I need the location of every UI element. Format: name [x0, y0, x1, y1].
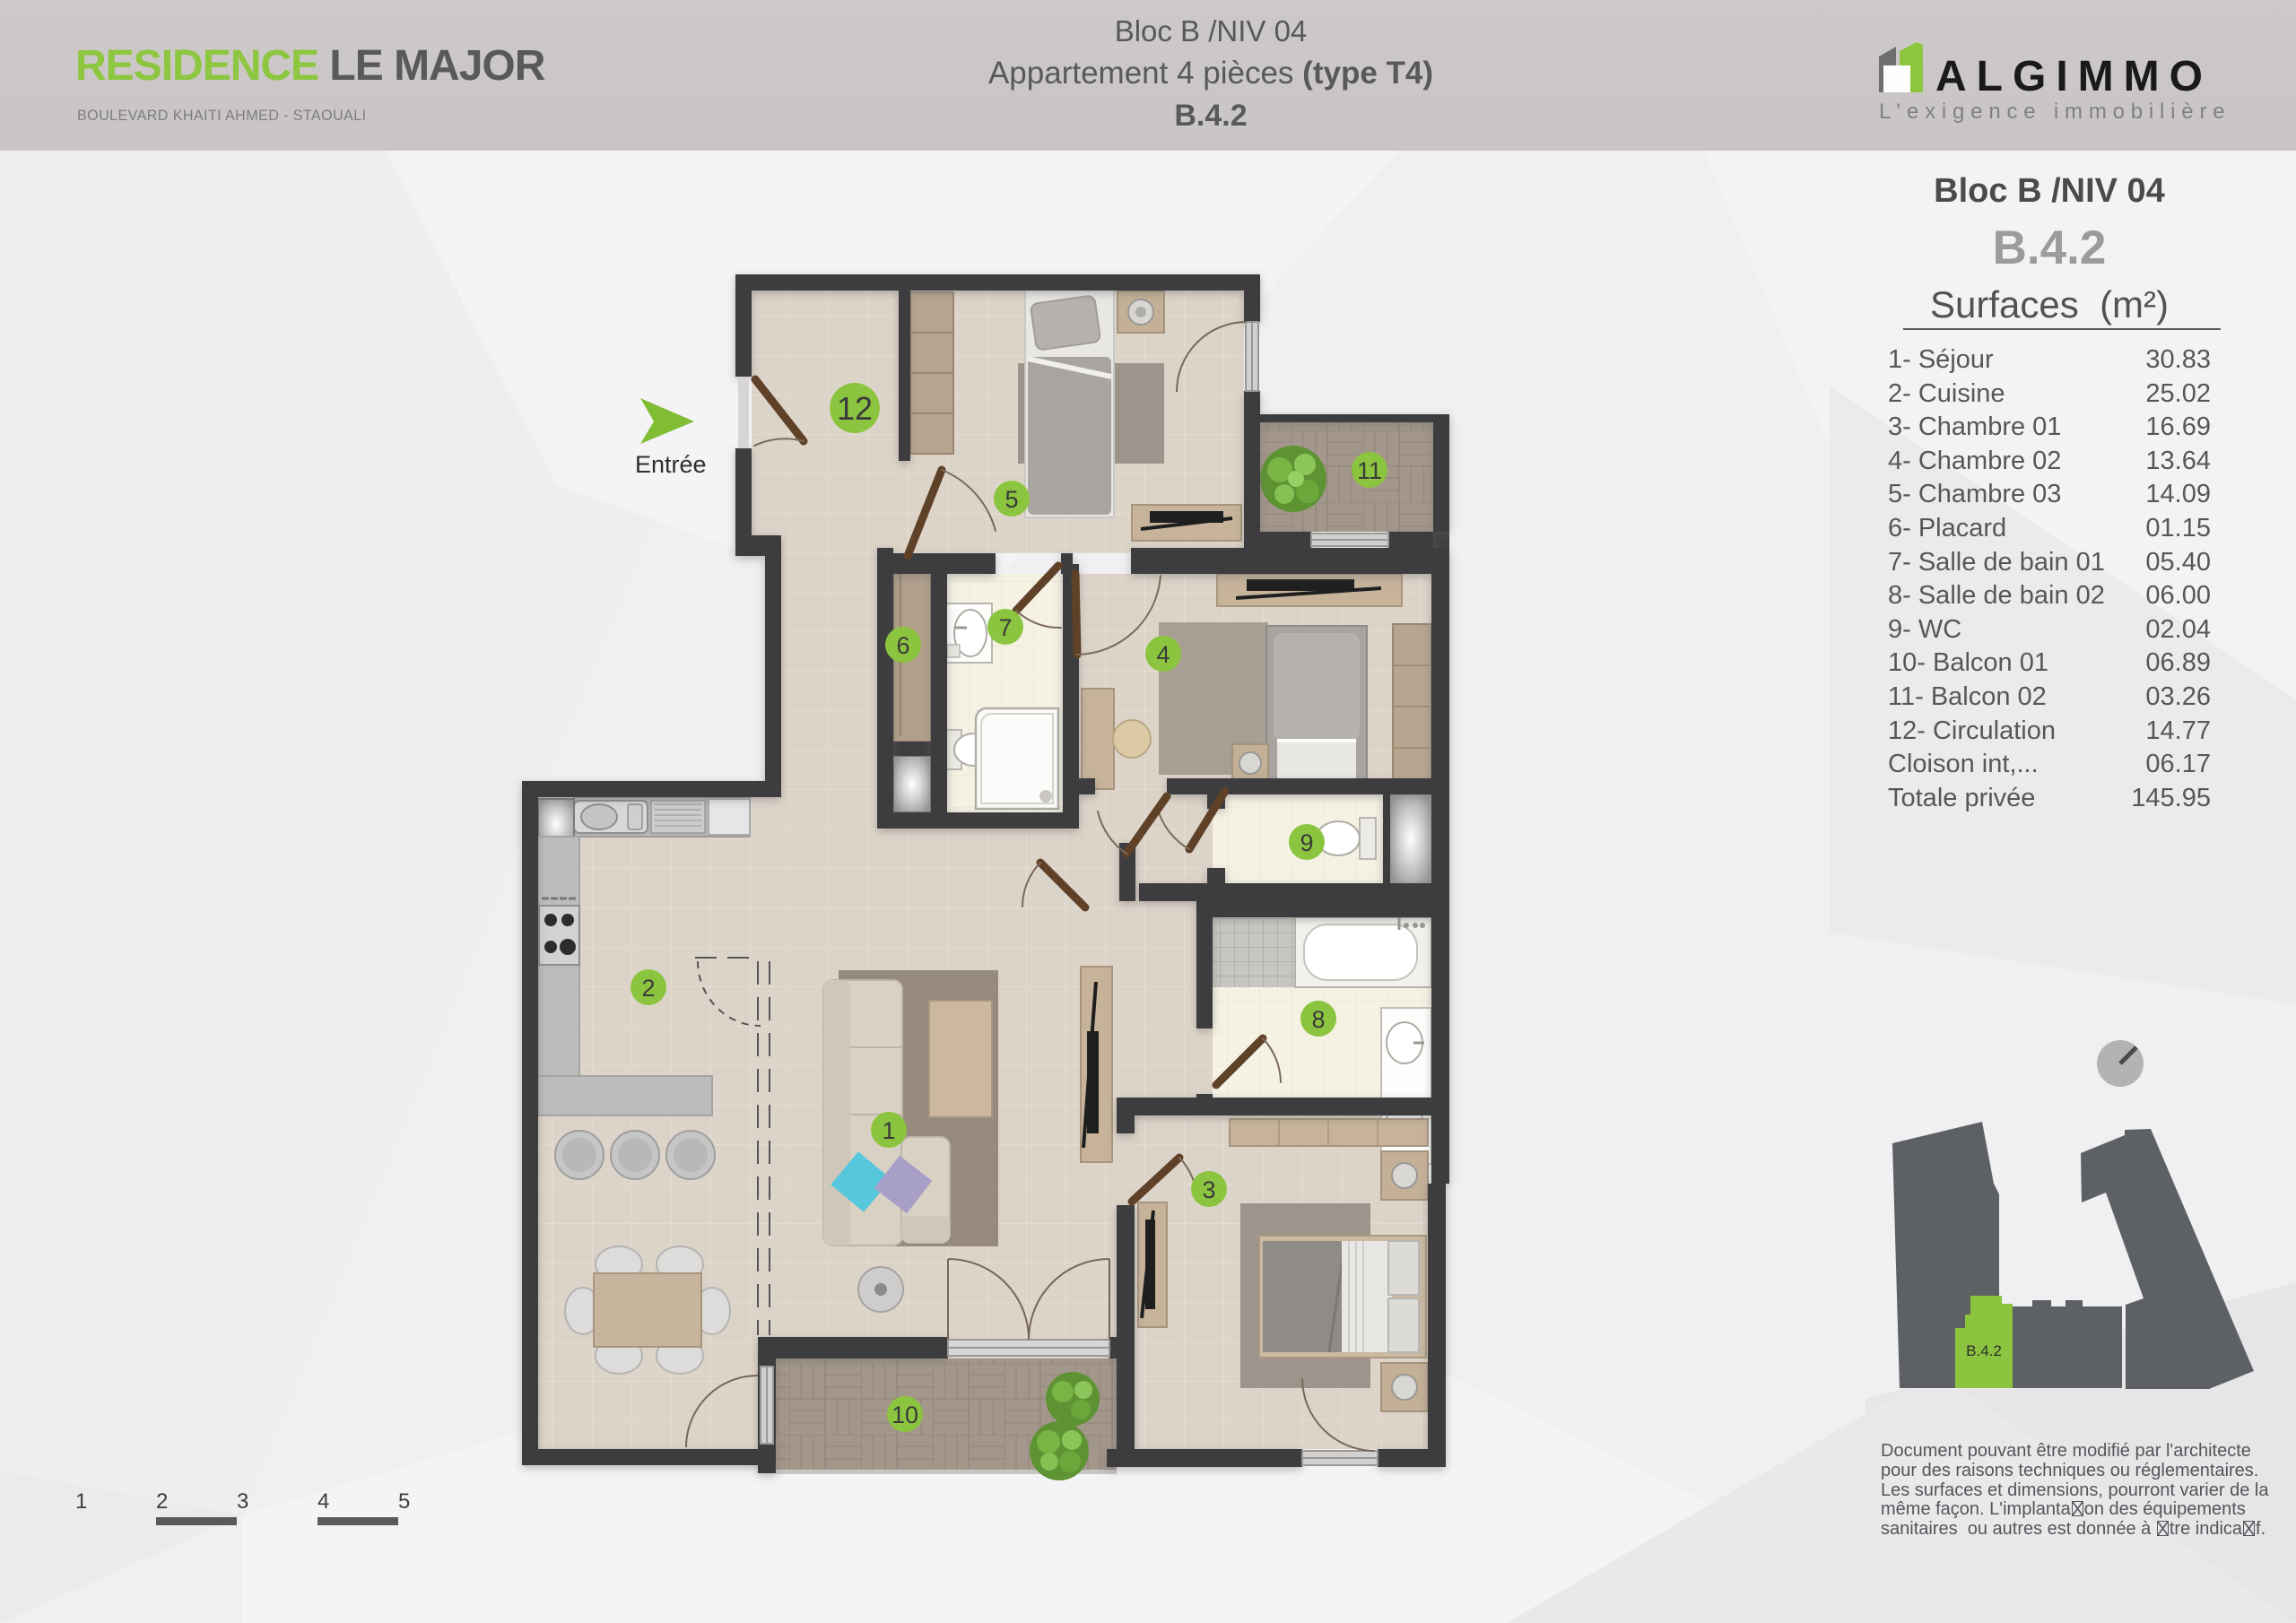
- svg-text:6: 6: [896, 632, 909, 659]
- svg-text:7: 7: [998, 614, 1012, 641]
- svg-text:5: 5: [1004, 486, 1018, 513]
- svg-text:3: 3: [1202, 1176, 1215, 1203]
- svg-text:11: 11: [1357, 457, 1382, 484]
- svg-text:12: 12: [837, 390, 873, 427]
- svg-text:2: 2: [641, 975, 655, 1002]
- svg-text:Entrée: Entrée: [635, 451, 707, 478]
- svg-text:B.4.2: B.4.2: [1966, 1342, 2002, 1359]
- svg-text:1: 1: [882, 1117, 895, 1144]
- svg-text:8: 8: [1311, 1006, 1325, 1033]
- svg-text:4: 4: [1156, 641, 1170, 668]
- svg-text:10: 10: [891, 1402, 918, 1428]
- svg-text:9: 9: [1300, 829, 1313, 856]
